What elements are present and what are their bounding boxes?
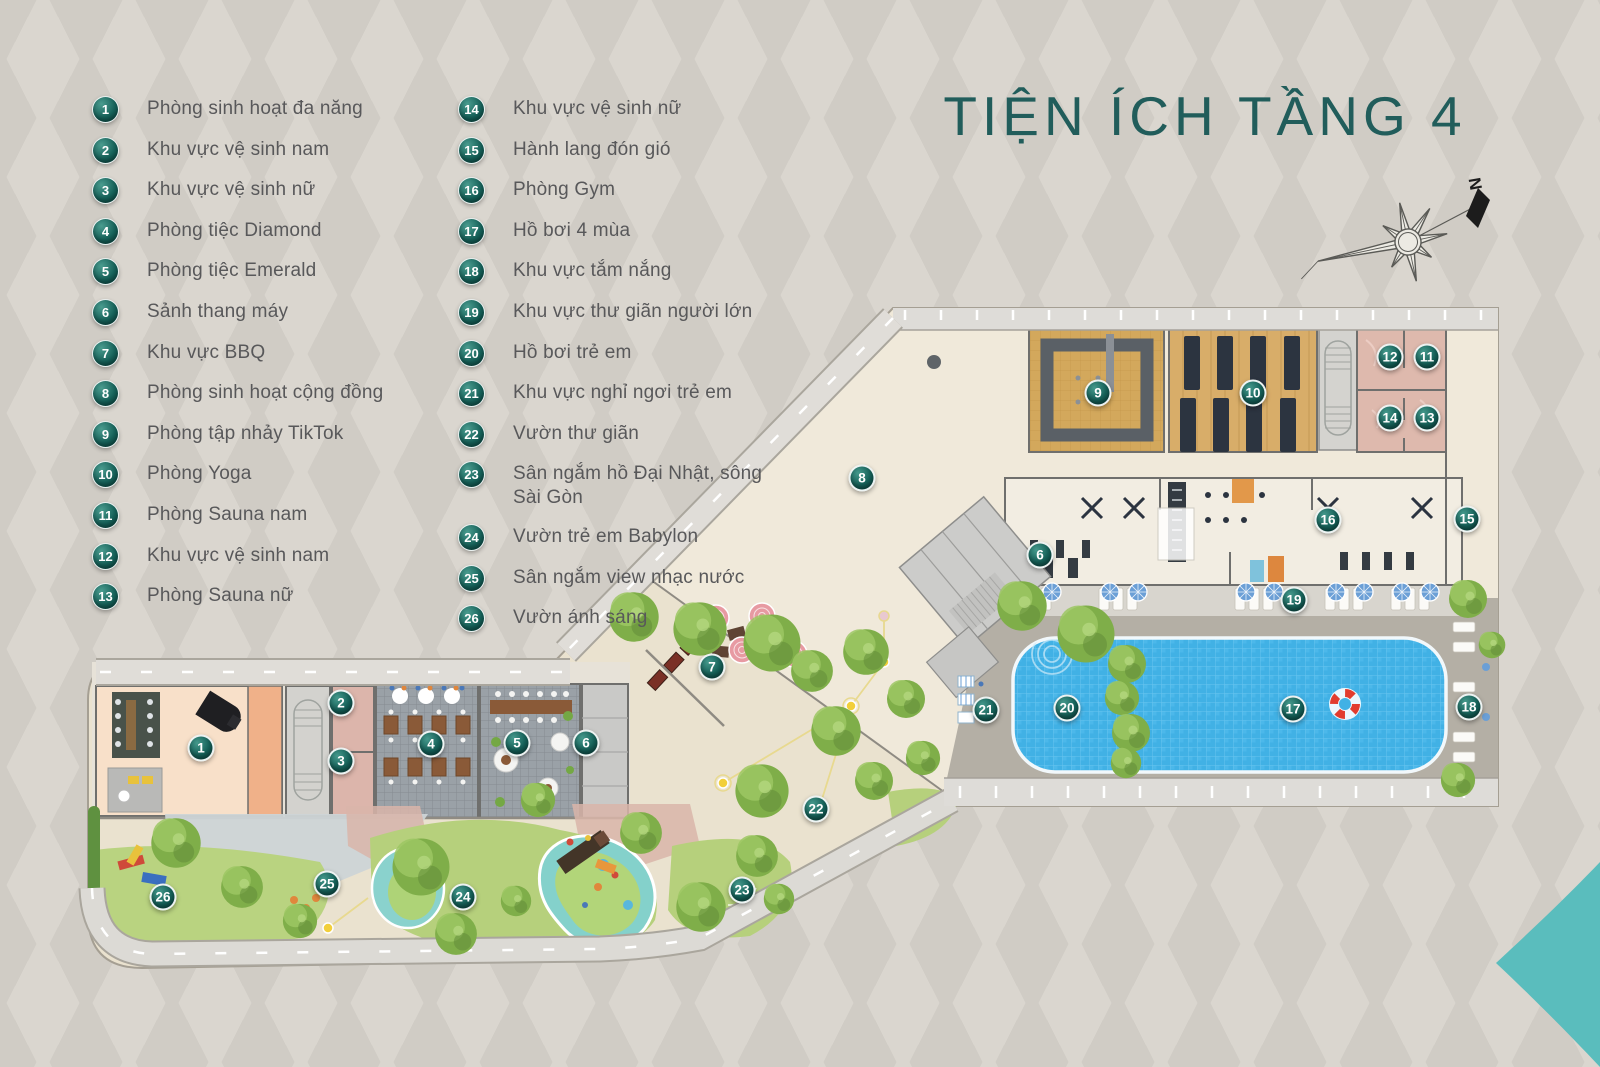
legend-item-6: 6Sảnh thang máy [92, 299, 402, 326]
legend-badge-20: 20 [458, 340, 485, 367]
legend-item-18: 18Khu vực tắm nắng [458, 258, 778, 285]
legend-item-15: 15Hành lang đón gió [458, 137, 778, 164]
legend-badge-21: 21 [458, 380, 485, 407]
legend-item-11: 11Phòng Sauna nam [92, 502, 402, 529]
map-marker-14[interactable]: 14 [1377, 405, 1404, 432]
legend-label-9: Phòng tập nhảy TikTok [147, 421, 343, 446]
legend-label-2: Khu vực vệ sinh nam [147, 137, 329, 162]
legend-column-1: 1Phòng sinh hoạt đa năng2Khu vực vệ sinh… [92, 96, 402, 646]
legend-item-9: 9Phòng tập nhảy TikTok [92, 421, 402, 448]
legend-item-14: 14Khu vực vệ sinh nữ [458, 96, 778, 123]
legend-badge-4: 4 [92, 218, 119, 245]
legend-label-15: Hành lang đón gió [513, 137, 671, 162]
legend-badge-18: 18 [458, 258, 485, 285]
map-marker-4[interactable]: 4 [418, 731, 445, 758]
map-marker-13[interactable]: 13 [1414, 405, 1441, 432]
legend-item-25: 25Sân ngắm view nhạc nước [458, 565, 778, 592]
legend-item-26: 26Vườn ánh sáng [458, 605, 778, 632]
legend-label-7: Khu vực BBQ [147, 340, 265, 365]
map-marker-26[interactable]: 26 [150, 884, 177, 911]
legend-label-23: Sân ngắm hồ Đại Nhật, sông Sài Gòn [513, 461, 778, 510]
legend-label-10: Phòng Yoga [147, 461, 252, 486]
legend-badge-11: 11 [92, 502, 119, 529]
legend-badge-24: 24 [458, 524, 485, 551]
legend-item-5: 5Phòng tiệc Emerald [92, 258, 402, 285]
map-marker-7[interactable]: 7 [699, 654, 726, 681]
legend-badge-22: 22 [458, 421, 485, 448]
compass-north-label: N [1465, 176, 1486, 191]
legend-item-3: 3Khu vực vệ sinh nữ [92, 177, 402, 204]
legend-item-8: 8Phòng sinh hoạt cộng đồng [92, 380, 402, 407]
map-marker-10[interactable]: 10 [1240, 380, 1267, 407]
legend-badge-3: 3 [92, 177, 119, 204]
legend-badge-8: 8 [92, 380, 119, 407]
map-marker-17[interactable]: 17 [1280, 696, 1307, 723]
gym-room [1005, 478, 1462, 585]
map-marker-16[interactable]: 16 [1315, 507, 1342, 534]
legend-label-14: Khu vực vệ sinh nữ [513, 96, 681, 121]
legend-item-23: 23Sân ngắm hồ Đại Nhật, sông Sài Gòn [458, 461, 778, 510]
map-marker-11[interactable]: 11 [1414, 344, 1441, 371]
legend-badge-6: 6 [92, 299, 119, 326]
legend-badge-17: 17 [458, 218, 485, 245]
map-marker-12[interactable]: 12 [1377, 344, 1404, 371]
legend-badge-12: 12 [92, 543, 119, 570]
legend-badge-14: 14 [458, 96, 485, 123]
map-marker-8[interactable]: 8 [849, 465, 876, 492]
legend-label-12: Khu vực vệ sinh nam [147, 543, 329, 568]
legend-item-1: 1Phòng sinh hoạt đa năng [92, 96, 402, 123]
map-marker-15[interactable]: 15 [1454, 506, 1481, 533]
legend-item-19: 19Khu vực thư giãn người lớn [458, 299, 778, 326]
legend-badge-16: 16 [458, 177, 485, 204]
map-marker-23[interactable]: 23 [729, 877, 756, 904]
map-marker-19[interactable]: 19 [1281, 587, 1308, 614]
legend-badge-13: 13 [92, 583, 119, 610]
teal-flourish [1496, 862, 1600, 1067]
gym-lockers [1232, 479, 1254, 503]
legend-label-5: Phòng tiệc Emerald [147, 258, 316, 283]
legend-item-24: 24Vườn trẻ em Babylon [458, 524, 778, 551]
legend-badge-9: 9 [92, 421, 119, 448]
legend-column-2: 14Khu vực vệ sinh nữ15Hành lang đón gió1… [458, 96, 778, 646]
legend-label-13: Phòng Sauna nữ [147, 583, 294, 608]
legend-item-2: 2Khu vực vệ sinh nam [92, 137, 402, 164]
legend-label-24: Vườn trẻ em Babylon [513, 524, 698, 549]
legend-badge-1: 1 [92, 96, 119, 123]
legend: 1Phòng sinh hoạt đa năng2Khu vực vệ sinh… [92, 96, 778, 646]
legend-item-22: 22Vườn thư giãn [458, 421, 778, 448]
legend-item-17: 17Hồ bơi 4 mùa [458, 218, 778, 245]
map-marker-22[interactable]: 22 [803, 796, 830, 823]
legend-label-20: Hồ bơi trẻ em [513, 340, 632, 365]
legend-label-11: Phòng Sauna nam [147, 502, 307, 527]
map-marker-20[interactable]: 20 [1054, 695, 1081, 722]
map-marker-18[interactable]: 18 [1456, 694, 1483, 721]
map-marker-24[interactable]: 24 [450, 884, 477, 911]
legend-item-16: 16Phòng Gym [458, 177, 778, 204]
map-marker-6[interactable]: 6 [573, 730, 600, 757]
column [927, 355, 941, 369]
legend-label-3: Khu vực vệ sinh nữ [147, 177, 315, 202]
legend-label-22: Vườn thư giãn [513, 421, 639, 446]
legend-item-12: 12Khu vực vệ sinh nam [92, 543, 402, 570]
map-marker-9[interactable]: 9 [1085, 380, 1112, 407]
legend-label-16: Phòng Gym [513, 177, 615, 202]
legend-item-7: 7Khu vực BBQ [92, 340, 402, 367]
legend-badge-19: 19 [458, 299, 485, 326]
legend-item-20: 20Hồ bơi trẻ em [458, 340, 778, 367]
legend-badge-25: 25 [458, 565, 485, 592]
legend-label-1: Phòng sinh hoạt đa năng [147, 96, 363, 121]
legend-label-8: Phòng sinh hoạt cộng đồng [147, 380, 383, 405]
legend-label-25: Sân ngắm view nhạc nước [513, 565, 745, 590]
legend-badge-23: 23 [458, 461, 485, 488]
stairwell [1319, 329, 1357, 450]
legend-item-4: 4Phòng tiệc Diamond [92, 218, 402, 245]
legend-item-21: 21Khu vực nghỉ ngơi trẻ em [458, 380, 778, 407]
compass-needle [1466, 188, 1490, 228]
map-marker-2[interactable]: 2 [328, 690, 355, 717]
legend-label-17: Hồ bơi 4 mùa [513, 218, 630, 243]
map-marker-3[interactable]: 3 [328, 748, 355, 775]
legend-label-6: Sảnh thang máy [147, 299, 288, 324]
legend-badge-7: 7 [92, 340, 119, 367]
page-title: TIỆN ÍCH TẦNG 4 [915, 84, 1495, 148]
legend-badge-10: 10 [92, 461, 119, 488]
map-marker-21[interactable]: 21 [973, 697, 1000, 724]
map-marker-25[interactable]: 25 [314, 871, 341, 898]
legend-badge-15: 15 [458, 137, 485, 164]
legend-label-21: Khu vực nghỉ ngơi trẻ em [513, 380, 732, 405]
map-marker-1[interactable]: 1 [188, 735, 215, 762]
map-marker-6[interactable]: 6 [1027, 542, 1054, 569]
legend-badge-26: 26 [458, 605, 485, 632]
legend-label-18: Khu vực tắm nắng [513, 258, 672, 283]
legend-label-26: Vườn ánh sáng [513, 605, 647, 630]
page: 1Phòng sinh hoạt đa năng2Khu vực vệ sinh… [0, 0, 1600, 1067]
lifebuoy-icon [1329, 688, 1361, 720]
legend-label-4: Phòng tiệc Diamond [147, 218, 322, 243]
map-marker-5[interactable]: 5 [504, 730, 531, 757]
compass-rose: N [1290, 172, 1520, 312]
legend-badge-2: 2 [92, 137, 119, 164]
legend-badge-5: 5 [92, 258, 119, 285]
legend-item-13: 13Phòng Sauna nữ [92, 583, 402, 610]
legend-item-10: 10Phòng Yoga [92, 461, 402, 488]
legend-label-19: Khu vực thư giãn người lớn [513, 299, 752, 324]
